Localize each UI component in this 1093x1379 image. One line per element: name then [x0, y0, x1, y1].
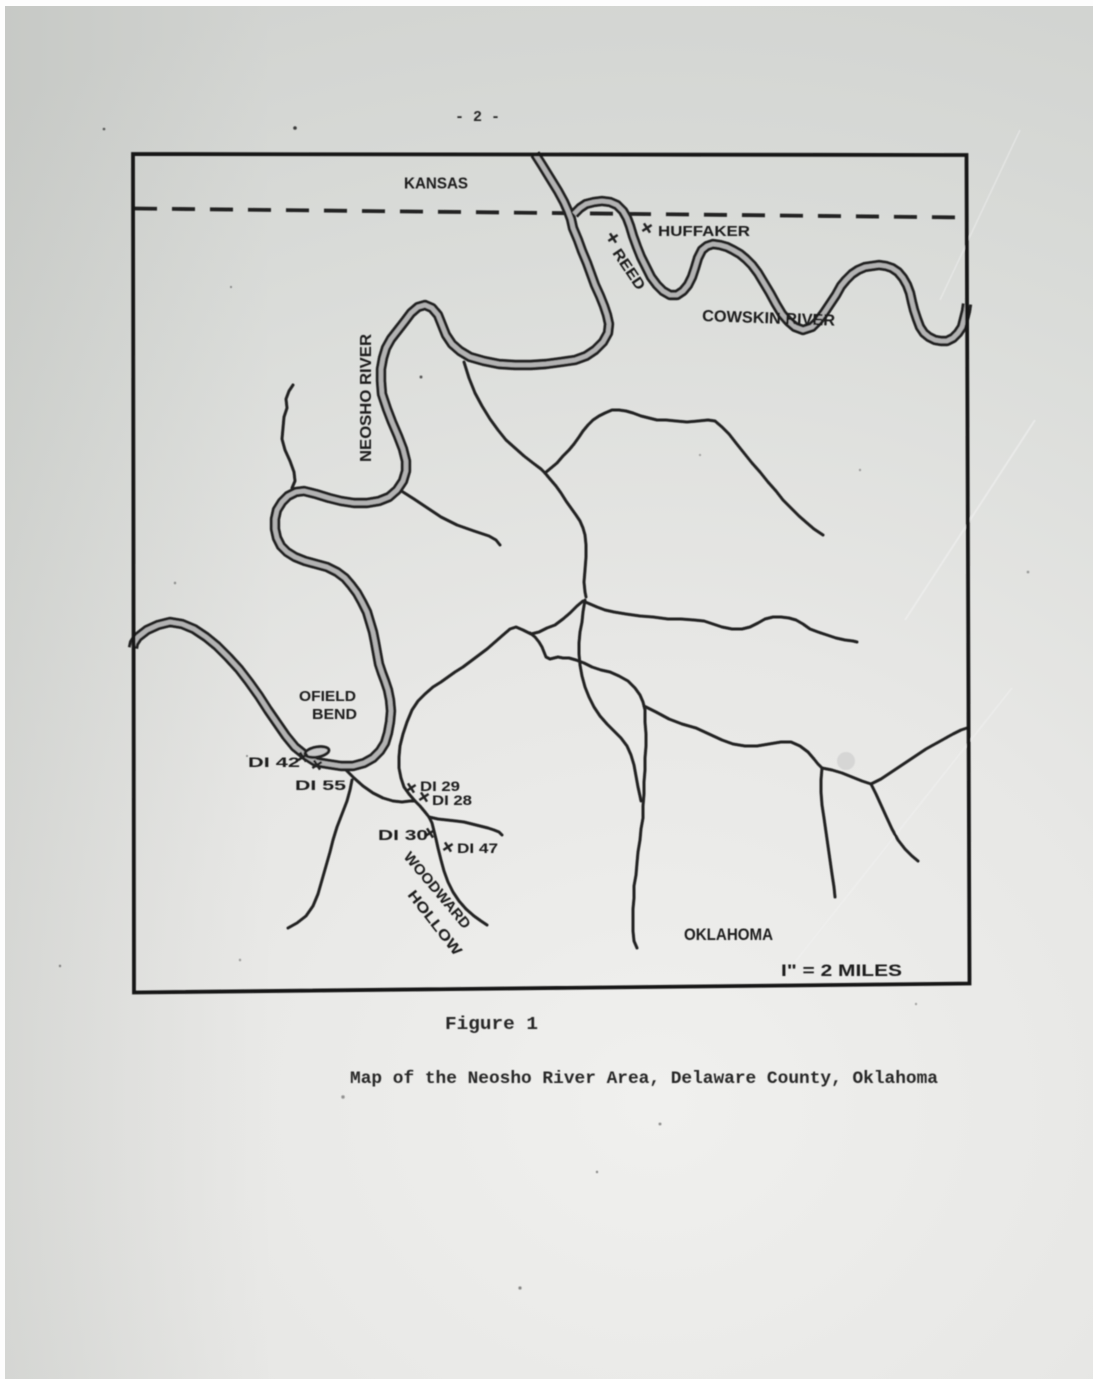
svg-text:OKLAHOMA: OKLAHOMA — [684, 925, 773, 944]
svg-text:KANSAS: KANSAS — [404, 176, 468, 193]
svg-text:I" = 2 MILES: I" = 2 MILES — [781, 962, 902, 980]
svg-text:HUFFAKER: HUFFAKER — [658, 223, 750, 240]
svg-text:DI 55: DI 55 — [295, 777, 346, 793]
svg-text:Map of the Neosho River Area,: Map of the Neosho River Area, Delaware C… — [350, 1069, 938, 1089]
svg-text:DI 42: DI 42 — [248, 754, 300, 770]
svg-text:Figure 1: Figure 1 — [445, 1014, 538, 1035]
svg-text:OFIELD: OFIELD — [299, 689, 356, 705]
svg-text:- 2 -: - 2 - — [455, 109, 500, 126]
svg-text:COWSKIN RIVER: COWSKIN RIVER — [702, 308, 836, 330]
svg-text:NEOSHO RIVER: NEOSHO RIVER — [358, 334, 375, 462]
svg-text:DI 30: DI 30 — [378, 828, 428, 844]
svg-text:BEND: BEND — [312, 707, 357, 723]
svg-text:DI 47: DI 47 — [457, 840, 498, 856]
svg-text:DI 28: DI 28 — [432, 792, 472, 808]
